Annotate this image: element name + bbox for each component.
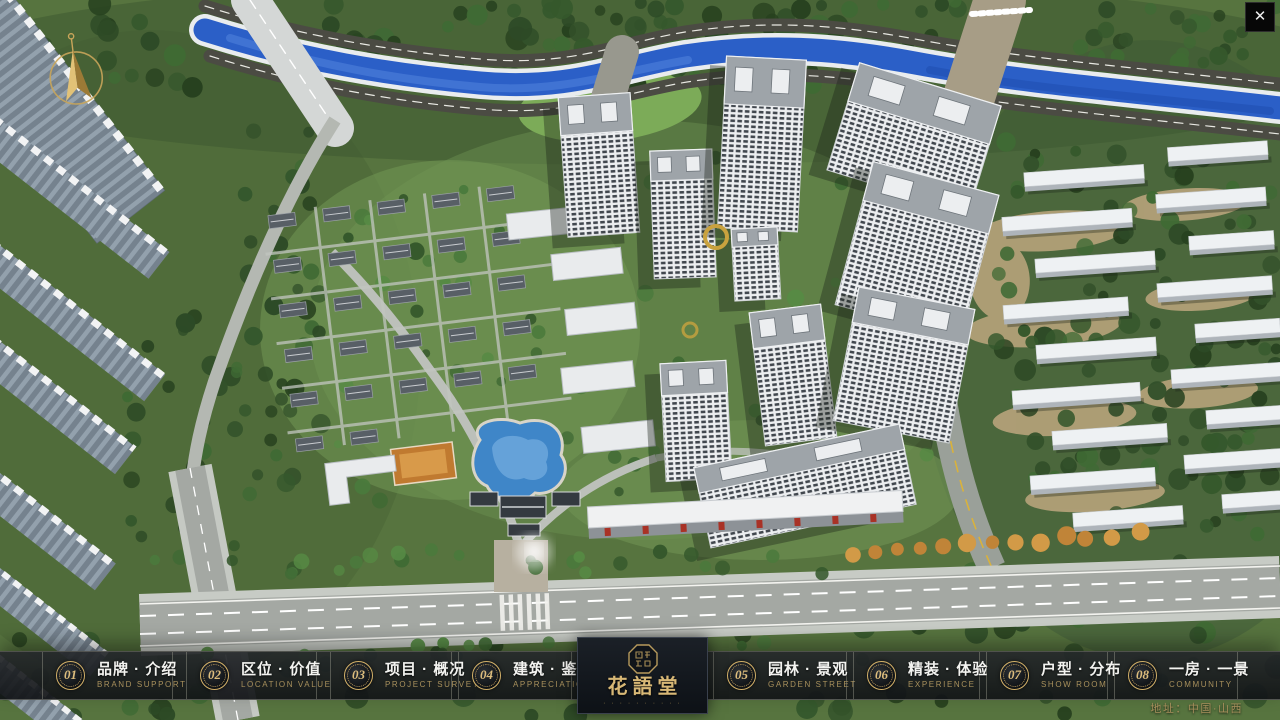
nav-item-project[interactable]: 03 项目 · 概况 PROJECT SURVEY: [330, 652, 452, 699]
nav-item-architecture[interactable]: 04 建筑 · 鉴赏 APPRECIATION: [458, 652, 572, 699]
nav-number-badge: 01: [56, 661, 85, 690]
nav-label-en: GARDEN STREET: [768, 681, 857, 689]
masterplan-aerial-render: [0, 0, 1280, 720]
nav-item-floorplans[interactable]: 07 户型 · 分布 SHOW ROOM: [986, 652, 1108, 699]
logo-panel[interactable]: 花語堂 · · · · · · · · · ·: [577, 637, 708, 714]
nav-label-en: EXPERIENCE: [908, 681, 988, 689]
nav-label-en: LOCATION VALUE: [241, 681, 332, 689]
nav-number-badge: 02: [200, 661, 229, 690]
nav-item-garden[interactable]: 05 园林 · 景观 GARDEN STREET: [713, 652, 847, 699]
nav-number-badge: 03: [344, 661, 373, 690]
project-address: 地址：中国·山西: [1150, 700, 1243, 716]
nav-number-badge: 08: [1128, 661, 1157, 690]
nav-label-zh: 精装 · 体验: [908, 662, 988, 677]
nav-label-zh: 区位 · 价值: [241, 662, 332, 677]
nav-label-zh: 户型 · 分布: [1041, 662, 1121, 677]
seal-emblem-icon: [627, 643, 659, 675]
presentation-stage: 01 品牌 · 介绍 BRAND SUPPORT 02 区位 · 价值 LOCA…: [0, 0, 1280, 720]
nav-item-views[interactable]: 08 一房 · 一景 COMMUNITY: [1114, 652, 1238, 699]
nav-label-en: SHOW ROOM: [1041, 681, 1121, 689]
nav-item-brand[interactable]: 01 品牌 · 介绍 BRAND SUPPORT: [42, 652, 173, 699]
project-logo-name: 花語堂: [603, 677, 683, 697]
nav-label-zh: 品牌 · 介绍: [97, 662, 187, 677]
nav-number-badge: 05: [727, 661, 756, 690]
project-logo-tagline: · · · · · · · · · ·: [603, 700, 682, 707]
nav-label-en: COMMUNITY: [1169, 681, 1249, 689]
nav-number-badge: 07: [1000, 661, 1029, 690]
close-button[interactable]: ✕: [1245, 2, 1275, 32]
nav-label-zh: 一房 · 一景: [1169, 662, 1249, 677]
nav-number-badge: 06: [867, 661, 896, 690]
nav-label-en: BRAND SUPPORT: [97, 681, 187, 689]
north-compass-icon: [40, 28, 112, 114]
nav-item-interior[interactable]: 06 精装 · 体验 EXPERIENCE: [853, 652, 980, 699]
nav-item-location[interactable]: 02 区位 · 价值 LOCATION VALUE: [186, 652, 317, 699]
nav-number-badge: 04: [472, 661, 501, 690]
nav-label-zh: 园林 · 景观: [768, 662, 857, 677]
